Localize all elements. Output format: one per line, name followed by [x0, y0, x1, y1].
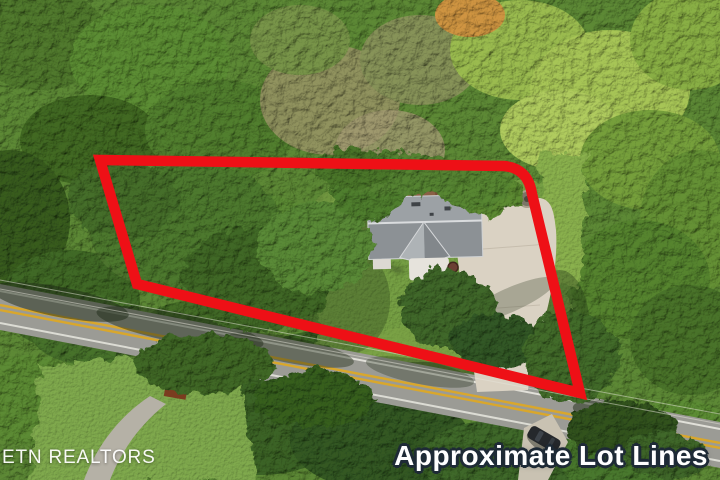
side-porch	[373, 259, 391, 269]
aerial-scene	[0, 0, 720, 480]
lot-lines-caption: Approximate Lot Lines	[394, 440, 708, 472]
aerial-photo: ETN REALTORS Approximate Lot Lines	[0, 0, 720, 480]
realtor-watermark: ETN REALTORS	[2, 447, 156, 469]
